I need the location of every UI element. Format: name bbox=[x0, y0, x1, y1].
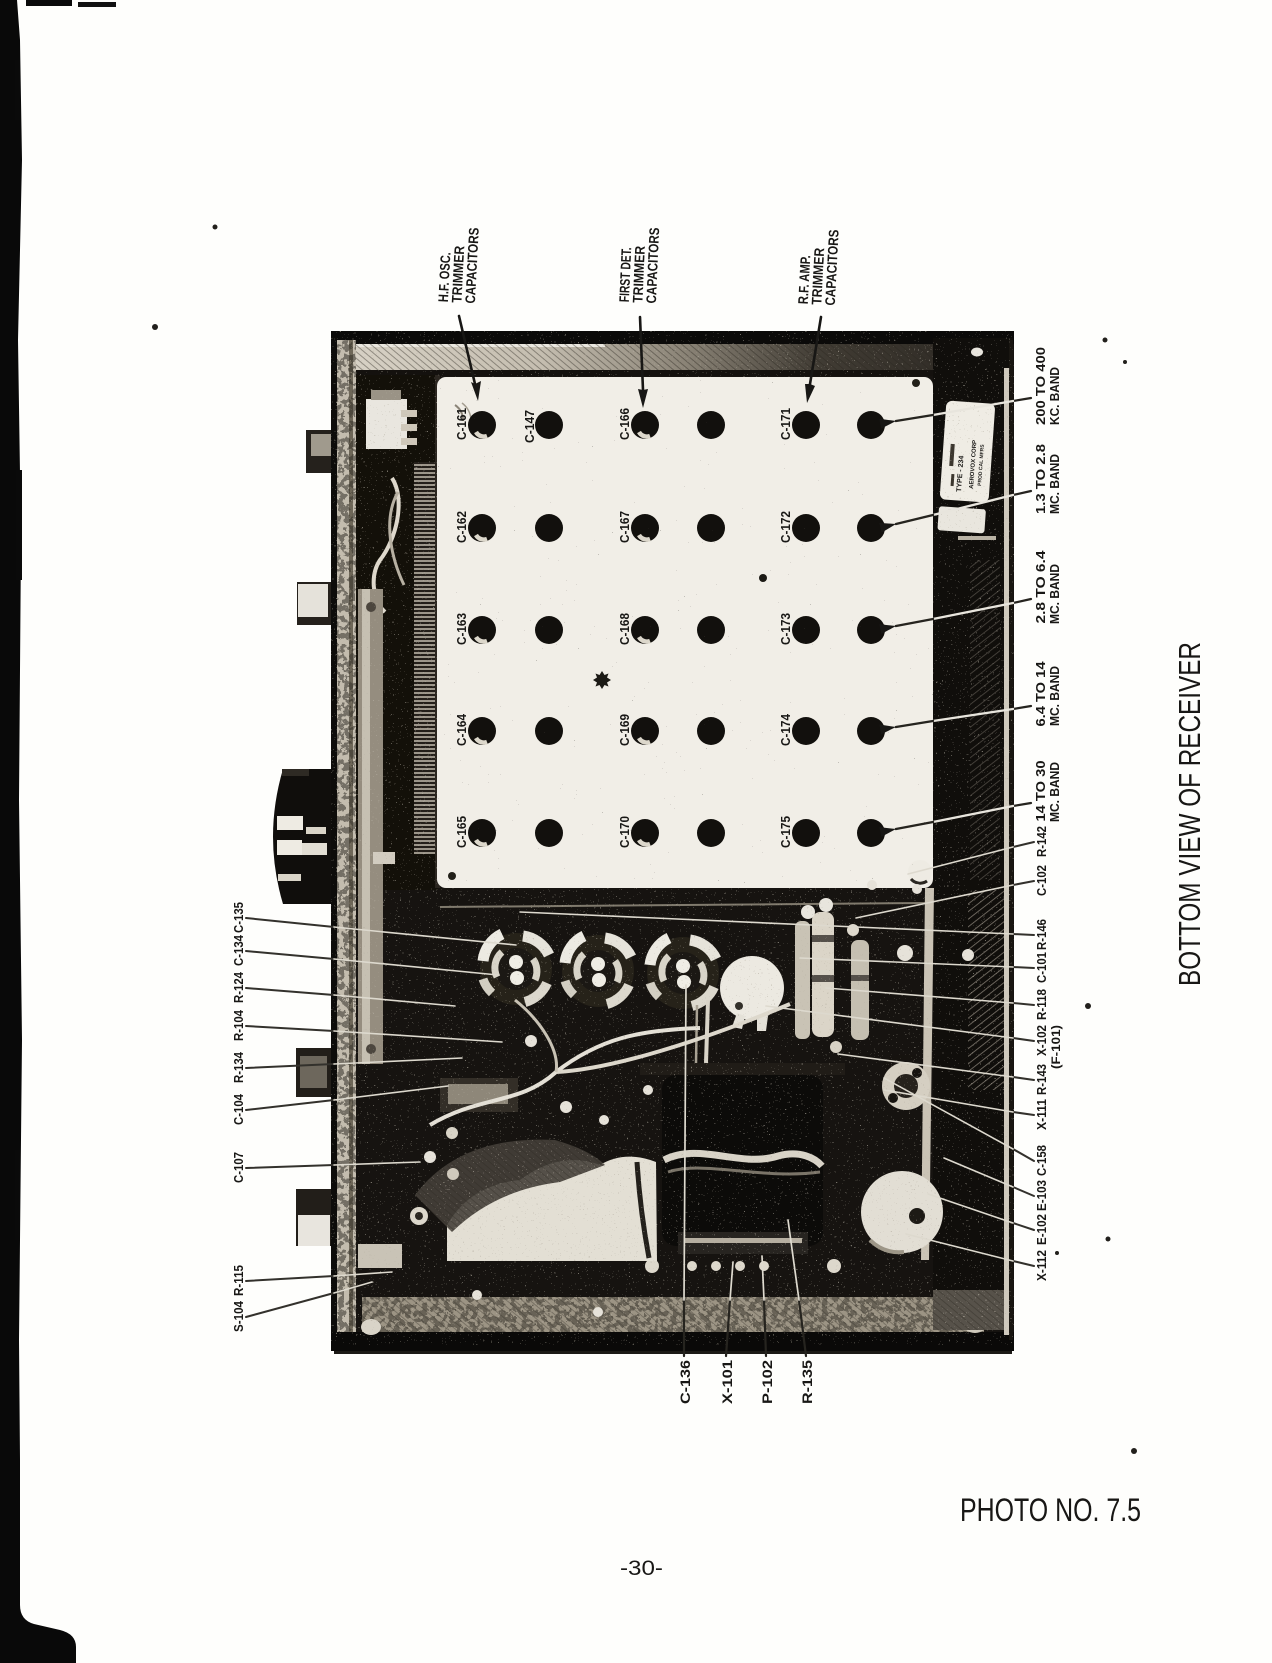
svg-text:MC. BAND: MC. BAND bbox=[1047, 454, 1062, 514]
svg-text:S-104: S-104 bbox=[231, 1300, 246, 1332]
svg-text:KC. BAND: KC. BAND bbox=[1047, 367, 1062, 425]
svg-text:200 TO 400: 200 TO 400 bbox=[1033, 347, 1048, 425]
svg-text:-30-: -30- bbox=[620, 1557, 663, 1580]
svg-text:CAPACITORS: CAPACITORS bbox=[822, 229, 842, 306]
svg-text:R-146: R-146 bbox=[1034, 919, 1049, 950]
svg-text:R-115: R-115 bbox=[231, 1265, 246, 1296]
svg-text:R-142: R-142 bbox=[1034, 826, 1049, 857]
svg-text:C-102: C-102 bbox=[1034, 865, 1049, 896]
svg-text:X-101: X-101 bbox=[719, 1360, 735, 1404]
svg-text:C-134: C-134 bbox=[231, 934, 246, 966]
svg-text:BOTTOM VIEW OF RECEIVER: BOTTOM VIEW OF RECEIVER bbox=[1172, 642, 1207, 986]
svg-text:CAPACITORS: CAPACITORS bbox=[462, 227, 482, 304]
svg-text:E-102: E-102 bbox=[1034, 1214, 1049, 1245]
svg-text:MC. BAND: MC. BAND bbox=[1047, 564, 1062, 624]
svg-text:MC. BAND: MC. BAND bbox=[1047, 762, 1062, 822]
svg-text:6.4 TO 14: 6.4 TO 14 bbox=[1033, 661, 1048, 727]
svg-text:X-102: X-102 bbox=[1034, 1025, 1049, 1056]
svg-text:R-135: R-135 bbox=[799, 1360, 815, 1404]
svg-text:1.3 TO 2.8: 1.3 TO 2.8 bbox=[1033, 444, 1048, 514]
svg-text:E-103: E-103 bbox=[1034, 1180, 1049, 1211]
svg-text:C-135: C-135 bbox=[231, 902, 246, 933]
svg-text:C-107: C-107 bbox=[231, 1152, 246, 1183]
svg-text:R-124: R-124 bbox=[231, 971, 246, 1003]
svg-text:C-158: C-158 bbox=[1034, 1145, 1049, 1176]
svg-text:MC. BAND: MC. BAND bbox=[1047, 666, 1062, 726]
svg-text:R-143: R-143 bbox=[1034, 1064, 1049, 1095]
svg-text:C-136: C-136 bbox=[677, 1360, 693, 1404]
svg-text:R-134: R-134 bbox=[231, 1051, 246, 1083]
svg-text:X-112: X-112 bbox=[1034, 1250, 1049, 1281]
svg-text:R-118: R-118 bbox=[1034, 989, 1049, 1020]
svg-text:14 TO 30: 14 TO 30 bbox=[1033, 761, 1048, 822]
svg-text:P-102: P-102 bbox=[759, 1360, 775, 1404]
svg-text:CAPACITORS: CAPACITORS bbox=[643, 227, 662, 304]
svg-text:C-104: C-104 bbox=[231, 1093, 246, 1125]
svg-text:2.8 TO 6.4: 2.8 TO 6.4 bbox=[1033, 550, 1048, 624]
svg-text:(F-101): (F-101) bbox=[1049, 1025, 1063, 1069]
svg-text:C-101: C-101 bbox=[1034, 952, 1049, 983]
svg-text:X-111: X-111 bbox=[1034, 1099, 1049, 1130]
svg-text:R-104: R-104 bbox=[231, 1009, 246, 1041]
svg-text:PHOTO NO. 7.5: PHOTO NO. 7.5 bbox=[960, 1492, 1141, 1528]
